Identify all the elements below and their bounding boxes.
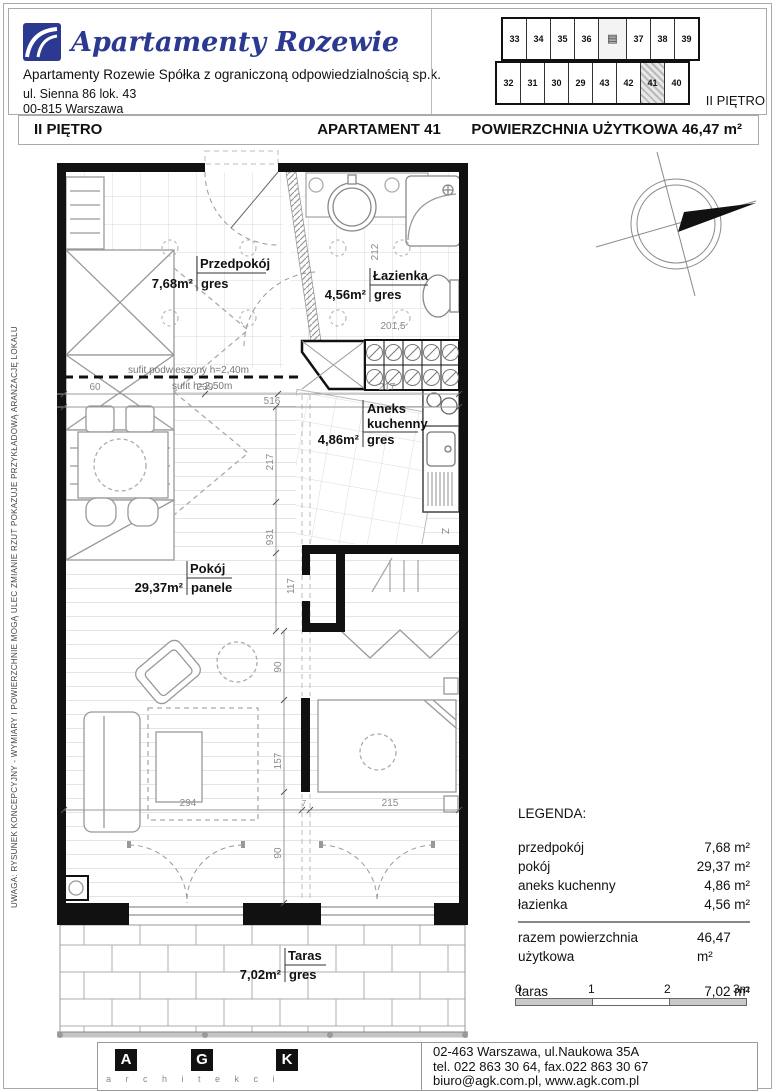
company-name: Apartamenty Rozewie Spółka z ograniczoną… xyxy=(23,67,441,82)
stairs-core-icon: ▤ xyxy=(599,19,627,59)
company-address-street: ul. Sienna 86 lok. 43 xyxy=(23,87,136,101)
scale-bar-segments xyxy=(515,998,747,1006)
dim-2015: 201,5 xyxy=(380,321,405,332)
miniplan-unit: 29 xyxy=(569,63,593,103)
legend-label: łazienka xyxy=(518,895,568,914)
legend-value: 46,47 m² xyxy=(697,928,750,966)
header: Apartamenty Rozewie Apartamenty Rozewie … xyxy=(8,8,767,115)
title-apartment: APARTAMENT 41 xyxy=(279,121,479,138)
miniplan-bottom-row: 3231302943424140 xyxy=(495,61,690,105)
legend-value: 7,68 m² xyxy=(704,838,750,857)
scale-label: 1 xyxy=(588,982,595,996)
contact-web: biuro@agk.com.pl, www.agk.com.pl xyxy=(433,1074,648,1089)
room-name: Taras xyxy=(288,948,322,963)
scale-label: 0 xyxy=(515,982,522,996)
dim-217: 217 xyxy=(379,382,396,393)
room-name: kuchenny xyxy=(367,416,428,431)
miniplan-floor-label: II PIĘTRO xyxy=(706,93,765,108)
terrace-railing xyxy=(57,1032,468,1038)
title-bar: II PIĘTRO APARTAMENT 41 POWIERZCHNIA UŻY… xyxy=(18,115,759,145)
fridge-label: Z xyxy=(439,528,450,534)
miniplan-unit: 37 xyxy=(627,19,651,59)
room-floor: panele xyxy=(191,580,232,595)
agk-logo-letter: A xyxy=(115,1049,137,1071)
scale-segment xyxy=(669,998,747,1006)
dim-7: 7 xyxy=(302,799,307,808)
dim-294: 294 xyxy=(180,798,197,809)
company-address-city: 00-815 Warszawa xyxy=(23,102,123,116)
legend-row: pokój 29,37 m² xyxy=(518,857,750,876)
agk-logo-letter: G xyxy=(191,1049,213,1071)
legend-label: pokój xyxy=(518,857,550,876)
agk-logo-letter: K xyxy=(276,1049,298,1071)
legend-divider xyxy=(518,921,750,923)
room-floor: gres xyxy=(201,276,228,291)
legend-row: aneks kuchenny 4,86 m² xyxy=(518,876,750,895)
room-floor: gres xyxy=(367,432,394,447)
developer-logo-text: Apartamenty Rozewie xyxy=(71,27,399,58)
dim-60: 60 xyxy=(89,382,101,393)
miniplan-unit: 33 xyxy=(503,19,527,59)
scale-label: 3m xyxy=(733,982,750,996)
miniplan-unit: 34 xyxy=(527,19,551,59)
miniplan-unit: 39 xyxy=(675,19,698,59)
room-name: Pokój xyxy=(190,561,225,576)
architect-contact: 02-463 Warszawa, ul.Naukowa 35A tel. 022… xyxy=(433,1045,648,1089)
legend-row: łazienka 4,56 m² xyxy=(518,895,750,914)
room-area: 7,02m² xyxy=(240,967,282,982)
legend-total-row: razem powierzchnia użytkowa 46,47 m² xyxy=(518,928,750,966)
title-usable-area: POWIERZCHNIA UŻYTKOWA 46,47 m² xyxy=(471,121,742,138)
dim-90a: 90 xyxy=(273,661,284,673)
footer-divider xyxy=(421,1043,422,1090)
miniplan-unit: 32 xyxy=(497,63,521,103)
miniplan-unit: 40 xyxy=(665,63,688,103)
legend-row: przedpokój 7,68 m² xyxy=(518,838,750,857)
miniplan-unit: 42 xyxy=(617,63,641,103)
legend-label: aneks kuchenny xyxy=(518,876,616,895)
floor-plan-sheet: Apartamenty Rozewie Apartamenty Rozewie … xyxy=(0,0,775,1092)
ceiling-note-normal: sufit h=2,50m xyxy=(172,381,232,392)
legend-value: 29,37 m² xyxy=(697,857,750,876)
legend-title: LEGENDA: xyxy=(518,806,750,821)
legend-value: 4,56 m² xyxy=(704,895,750,914)
room-area: 7,68m² xyxy=(152,276,194,291)
dim-117: 117 xyxy=(286,578,297,594)
room-name: Łazienka xyxy=(373,268,429,283)
room-name: Aneks xyxy=(367,401,406,416)
title-floor: II PIĘTRO xyxy=(34,121,102,138)
legend-value: 4,86 m² xyxy=(704,876,750,895)
miniplan-unit: 31 xyxy=(521,63,545,103)
miniplan-unit-highlighted: 41 xyxy=(641,63,665,103)
dim-157: 157 xyxy=(273,752,284,769)
dim-90b: 90 xyxy=(273,847,284,859)
contact-address: 02-463 Warszawa, ul.Naukowa 35A xyxy=(433,1045,648,1060)
miniplan-unit: 43 xyxy=(593,63,617,103)
developer-logo-icon xyxy=(23,23,61,66)
miniplan-top-row: 33343536▤373839 xyxy=(501,17,700,61)
miniplan-unit: 35 xyxy=(551,19,575,59)
miniplan-unit: 30 xyxy=(545,63,569,103)
legend: LEGENDA: przedpokój 7,68 m² pokój 29,37 … xyxy=(518,806,750,1001)
room-area: 4,56m² xyxy=(325,287,367,302)
miniplan-unit: 36 xyxy=(575,19,599,59)
room-floor: gres xyxy=(374,287,401,302)
scale-segment xyxy=(515,998,593,1006)
scale-segment xyxy=(592,998,670,1006)
room-floor: gres xyxy=(289,967,316,982)
legend-label: razem powierzchnia użytkowa xyxy=(518,928,697,966)
dim-516: 516 xyxy=(264,396,281,407)
footer: A G K a r c h i t e k c i 02-463 Warszaw… xyxy=(97,1042,758,1091)
dim-215: 215 xyxy=(382,798,399,809)
room-name: Przedpokój xyxy=(200,256,270,271)
dim-212: 212 xyxy=(370,243,381,260)
floor-overview-miniplan: 33343536▤373839 3231302943424140 II PIĘT… xyxy=(489,11,765,112)
dim-931: 931 xyxy=(265,528,276,545)
contact-phone: tel. 022 863 30 64, fax.022 863 30 67 xyxy=(433,1060,648,1075)
room-area: 4,86m² xyxy=(318,432,360,447)
ceiling-note-suspended: sufit podwieszony h=2,40m xyxy=(128,365,249,376)
compass-icon xyxy=(596,152,756,296)
dim-217v: 217 xyxy=(265,453,276,470)
header-divider xyxy=(431,9,432,114)
room-area: 29,37m² xyxy=(135,580,184,595)
miniplan-unit: 38 xyxy=(651,19,675,59)
scale-label: 2 xyxy=(664,982,671,996)
scale-bar: 0 1 2 3m xyxy=(515,982,749,1008)
legend-label: przedpokój xyxy=(518,838,584,857)
agk-logo-subtitle: a r c h i t e k c i xyxy=(106,1074,281,1084)
